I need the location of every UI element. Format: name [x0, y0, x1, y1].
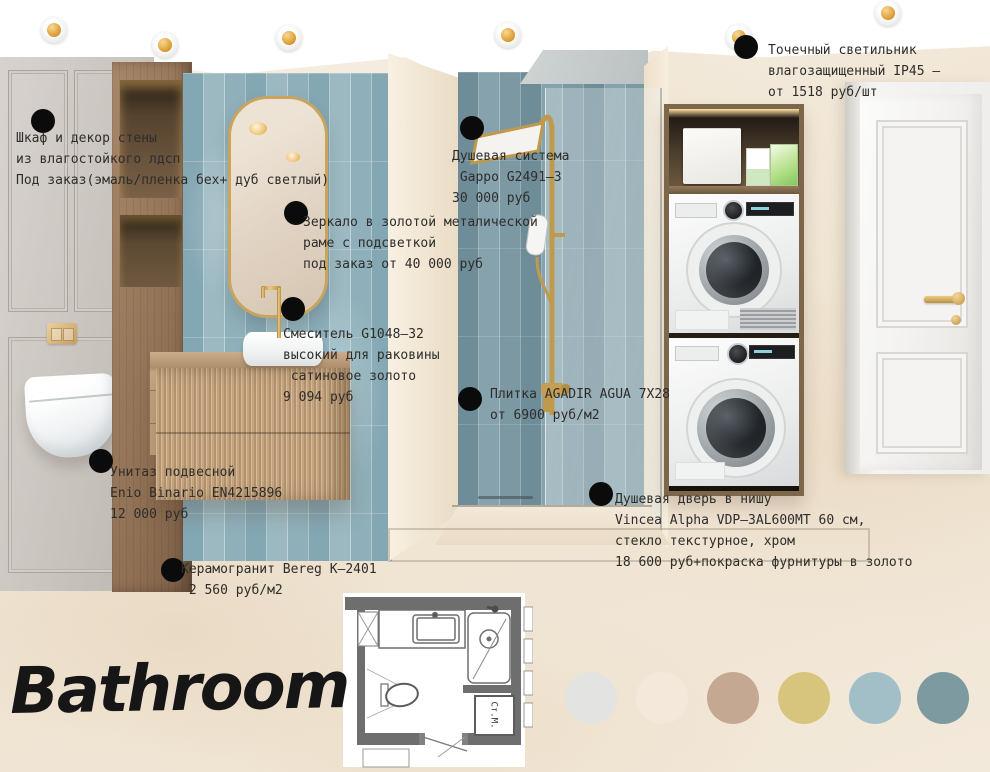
callout-dot — [734, 35, 758, 59]
door-handle-rosette — [952, 292, 965, 305]
annotation-mirror: Зеркало в золотой металической раме с по… — [303, 212, 538, 275]
dryer-base-drawer — [675, 310, 729, 330]
cabinet-shelf-niche — [120, 215, 182, 287]
detergent-pack — [746, 148, 770, 186]
shelf-board — [669, 186, 799, 194]
washer-knob — [727, 343, 749, 365]
annotation-faucet: Смеситель G1048–32 высокий для раковины … — [283, 324, 440, 408]
faucet-spout-tip — [261, 287, 265, 298]
floor-plan-washer: Ст.М. — [475, 696, 514, 735]
toilet-flush-plate — [47, 323, 77, 344]
dryer-drawer-panel — [675, 203, 717, 218]
annotation-spotlight: Точечный светильник влагозащищенный IP45… — [768, 40, 940, 103]
ceiling-spotlight — [41, 17, 67, 43]
washer-display — [749, 345, 795, 359]
annotation-floor-tile: Керамогранит Bereg К–2401 2 560 руб/м2 — [181, 559, 377, 601]
floor-plan-shaft — [358, 612, 378, 646]
callout-dot — [458, 387, 482, 411]
ceiling-spotlight — [495, 22, 521, 48]
annotation-shower-door: Душевая дверь в нишу Vincea Alpha VDP–3A… — [615, 489, 912, 573]
palette-swatch — [636, 672, 688, 724]
ceiling-spotlight — [875, 0, 901, 26]
floor-plan-shower — [468, 606, 510, 684]
door-keyhole — [951, 315, 961, 325]
dryer-display — [746, 202, 794, 216]
callout-dot — [281, 297, 305, 321]
floor-plan: Ст.М. — [343, 585, 533, 772]
washer-label: Ст.М. — [489, 701, 499, 728]
annotation-cabinet: Шкаф и декор стены из влагостойкого лдсп… — [16, 128, 329, 191]
palette-swatch — [778, 672, 830, 724]
palette-swatch — [917, 672, 969, 724]
washer-door-glass — [706, 398, 766, 458]
dryer-knob — [723, 200, 744, 221]
detergent-pack — [770, 144, 798, 186]
palette-swatch — [849, 672, 901, 724]
annotation-toilet: Унитаз подвесной Enio Binario EN4215896 … — [110, 462, 282, 525]
shower-drain — [478, 496, 533, 499]
moodboard: Ст.М. Bathroom Точечный светильник — [0, 0, 990, 772]
washer-drawer-panel — [675, 346, 719, 361]
dryer-door-glass — [706, 242, 762, 298]
ceiling-spotlight — [152, 32, 178, 58]
callout-dot — [589, 482, 613, 506]
door-panel-lower — [876, 352, 968, 454]
faucet-column — [277, 288, 281, 338]
annotation-tile: Плитка AGADIR AGUA 7X28 от 6900 руб/м2 — [490, 384, 670, 426]
washer-base-drawer — [675, 462, 725, 480]
palette-swatch — [565, 672, 617, 724]
callout-dot — [460, 116, 484, 140]
shower-left-wall — [388, 48, 462, 562]
page-title: Bathroom — [9, 649, 349, 729]
storage-box — [683, 128, 741, 184]
ceiling-spotlight — [276, 25, 302, 51]
palette-swatch — [707, 672, 759, 724]
floor-plan-sink — [379, 610, 465, 648]
shelf-light-glow — [669, 109, 799, 118]
annotation-shower: Душевая система Gappo G2491–3 30 000 руб — [452, 146, 569, 209]
dryer-vent-grille — [740, 308, 796, 330]
